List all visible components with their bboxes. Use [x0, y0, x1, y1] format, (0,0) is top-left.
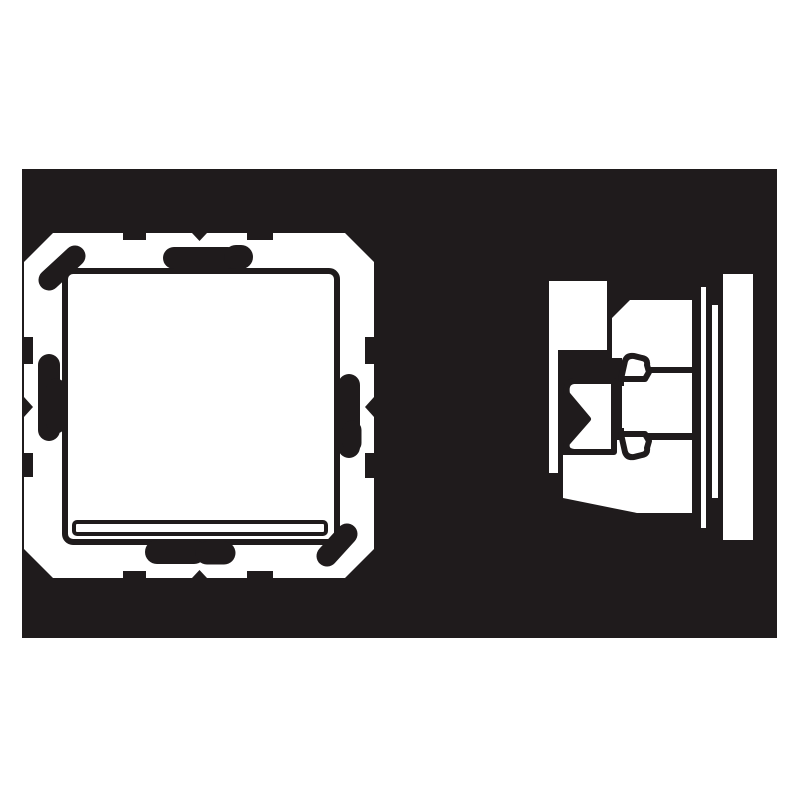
gap-strip-inner	[701, 287, 706, 528]
switch-illustration	[0, 0, 800, 800]
claw-tooth-top	[621, 356, 649, 379]
notch-left-lower	[24, 453, 33, 477]
claw-neck	[622, 386, 652, 428]
figure-canvas	[0, 0, 800, 800]
label-window	[74, 522, 326, 534]
notch-left-upper	[24, 337, 33, 364]
claw-tooth-bottom	[621, 434, 649, 457]
notch-right-lower	[365, 453, 374, 478]
claw-mark-bottom-right	[327, 534, 347, 556]
wall-frame-profile	[723, 274, 753, 540]
rocker-button	[65, 271, 337, 542]
gap-strip-outer	[712, 305, 718, 498]
notch-top-right	[247, 233, 273, 240]
notch-right-upper	[365, 337, 374, 364]
notch-top-left	[123, 233, 146, 240]
notch-bottom-right	[247, 571, 273, 578]
front-view	[24, 233, 374, 578]
notch-bottom-left	[123, 571, 146, 578]
